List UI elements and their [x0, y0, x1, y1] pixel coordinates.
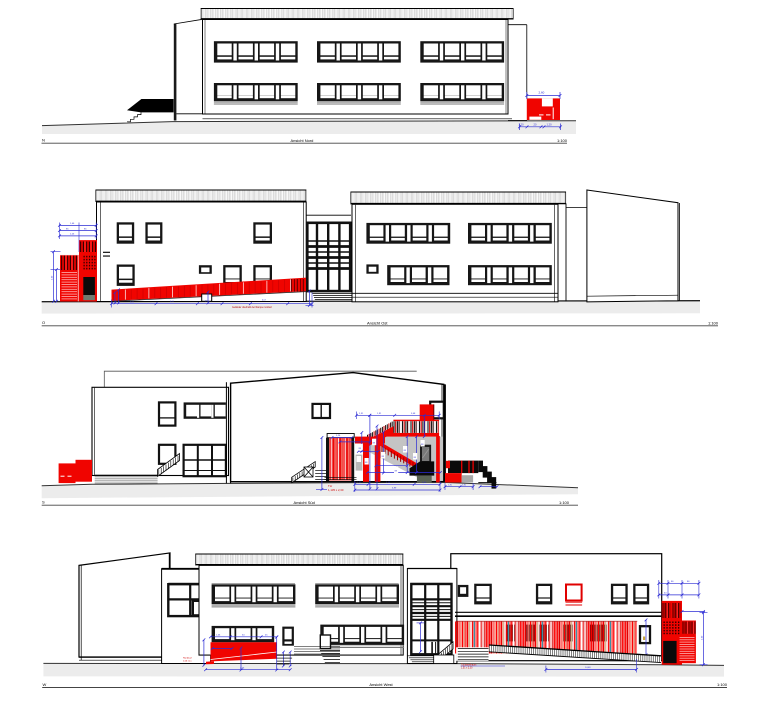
- svg-text:Ansicht West: Ansicht West: [369, 682, 393, 687]
- svg-text:2,60: 2,60: [539, 91, 545, 95]
- svg-text:Geländer oberhalb der Rampe mo: Geländer oberhalb der Rampe montiert: [232, 306, 272, 309]
- svg-text:1,20: 1,20: [547, 123, 553, 127]
- svg-text:Ansicht Ost: Ansicht Ost: [367, 320, 388, 325]
- svg-text:1:100: 1:100: [557, 138, 568, 143]
- svg-text:1:100: 1:100: [559, 500, 570, 505]
- svg-text:S: S: [42, 500, 45, 505]
- svg-text:Handlauf: Handlauf: [183, 658, 192, 660]
- svg-text:Ansicht Nord: Ansicht Nord: [291, 138, 314, 143]
- svg-text:14,48: 14,48: [585, 667, 591, 669]
- svg-text:1:100: 1:100: [708, 320, 719, 325]
- svg-text:1,51 x 2,30: 1,51 x 2,30: [461, 668, 473, 670]
- svg-text:O: O: [42, 320, 45, 325]
- svg-text:1,135 x 2,30: 1,135 x 2,30: [328, 488, 344, 492]
- svg-text:N: N: [42, 138, 45, 143]
- svg-text:W: W: [43, 682, 47, 687]
- svg-text:1:100: 1:100: [717, 682, 728, 687]
- svg-text:1,20: 1,20: [519, 123, 525, 127]
- svg-text:1,06 neu: 1,06 neu: [183, 661, 192, 663]
- svg-text:Ansicht Süd: Ansicht Süd: [294, 500, 315, 505]
